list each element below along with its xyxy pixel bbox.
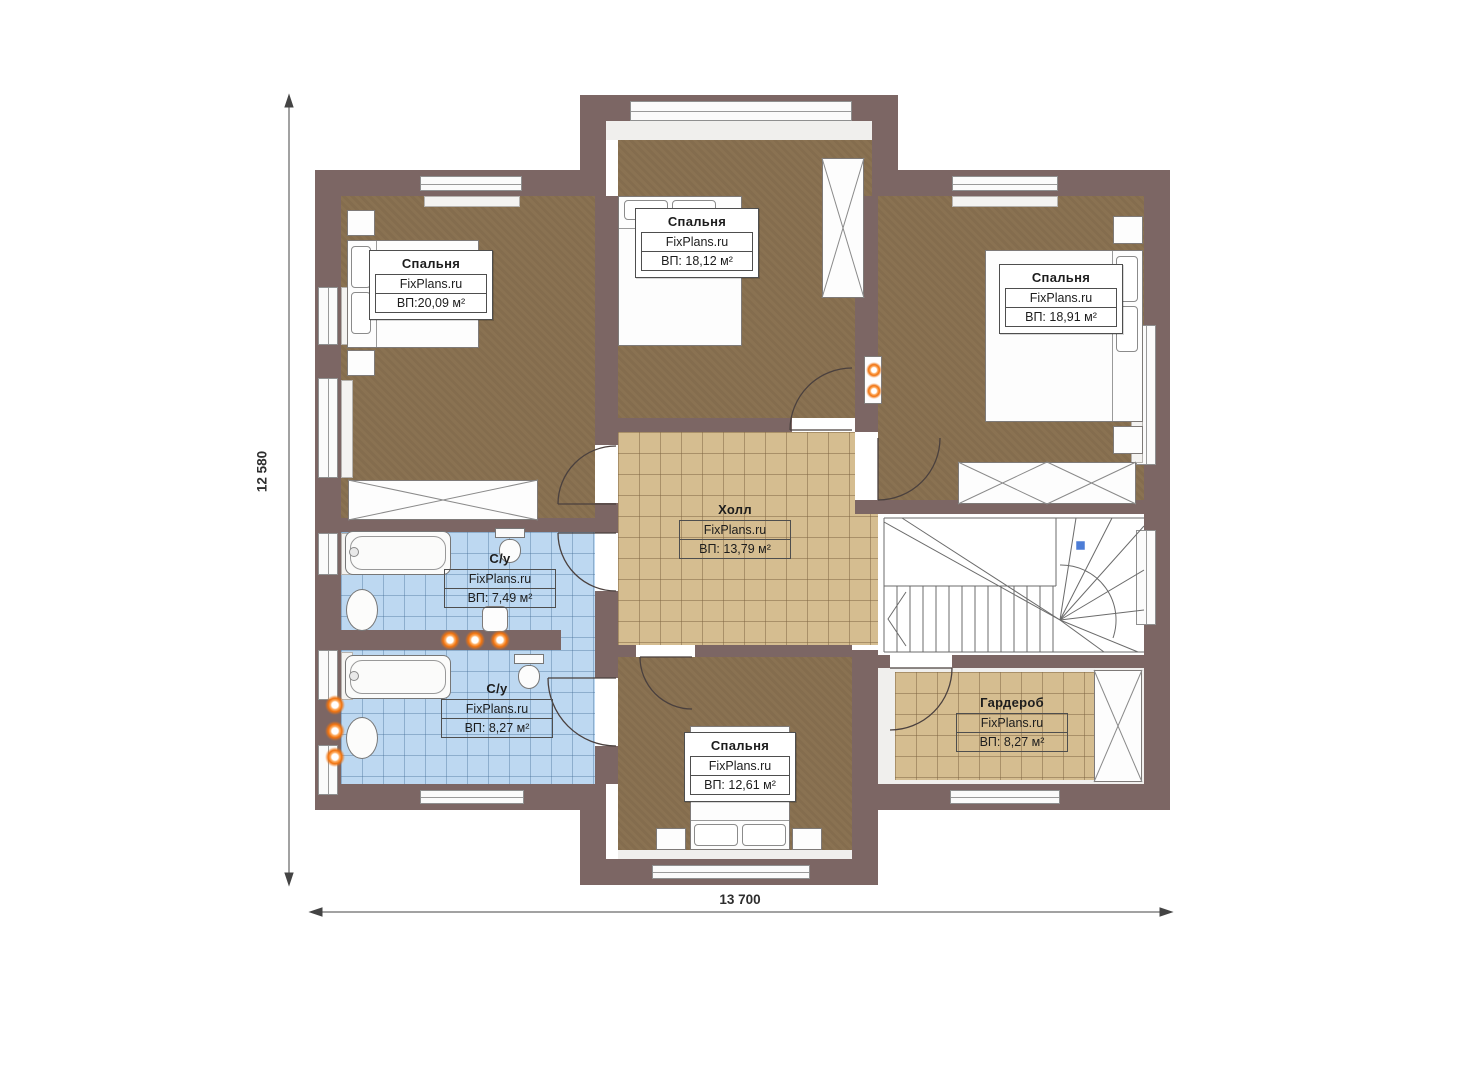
room-area: ВП: 8,27 м² <box>442 718 552 737</box>
window <box>318 287 338 345</box>
wall-segment <box>595 196 618 445</box>
room-area: ВП: 8,27 м² <box>957 732 1067 751</box>
sink <box>346 589 378 631</box>
room-watermark: FixPlans.ru <box>445 570 555 588</box>
window <box>318 378 338 478</box>
room-watermark: FixPlans.ru <box>1006 289 1116 307</box>
dimension-width-label: 13 700 <box>690 892 790 907</box>
room-watermark: FixPlans.ru <box>376 275 486 293</box>
radiator-dot <box>490 630 510 650</box>
window <box>420 790 524 804</box>
window-bay-top <box>606 121 872 140</box>
window <box>952 176 1058 191</box>
room-area: ВП: 18,91 м² <box>1006 307 1116 326</box>
window <box>420 176 522 191</box>
door-opening <box>595 678 618 746</box>
door-opening <box>595 445 618 503</box>
wall-segment <box>595 746 618 784</box>
room-name: Спальня <box>375 256 487 271</box>
wall-segment <box>852 650 878 784</box>
room-watermark: FixPlans.ru <box>680 521 790 539</box>
window-sill <box>424 196 520 207</box>
nightstand <box>1113 216 1143 244</box>
room-label-hall: Холл FixPlans.ru ВП: 13,79 м² <box>679 502 791 559</box>
room-label-bedroom-top: Спальня FixPlans.ru ВП: 18,12 м² <box>635 208 759 278</box>
room-label-bathroom-1: С/у FixPlans.ru ВП: 7,49 м² <box>444 551 556 608</box>
room-name: С/у <box>441 681 553 696</box>
radiator-dot <box>866 362 882 378</box>
wall-segment <box>618 418 792 432</box>
radiator-dot <box>325 695 345 715</box>
floor-plan-canvas: Спальня FixPlans.ru ВП:20,09 м² Спальня … <box>0 0 1474 1080</box>
bath-fixture <box>482 606 508 632</box>
room-name: Спальня <box>641 214 753 229</box>
wall-segment <box>952 655 1144 668</box>
room-name: Спальня <box>690 738 790 753</box>
room-area: ВП: 18,12 м² <box>642 251 752 270</box>
room-name: Спальня <box>1005 270 1117 285</box>
floor-staircase <box>878 514 1144 655</box>
sink <box>346 717 378 759</box>
room-area: ВП: 12,61 м² <box>691 775 789 794</box>
toilet <box>495 528 525 538</box>
room-watermark: FixPlans.ru <box>957 714 1067 732</box>
window <box>652 865 810 879</box>
radiator-dot <box>465 630 485 650</box>
bed-line <box>691 820 789 821</box>
wall-segment <box>595 591 618 678</box>
room-watermark: FixPlans.ru <box>691 757 789 775</box>
wardrobe-closet <box>822 158 864 298</box>
nightstand <box>347 350 375 376</box>
nightstand <box>792 828 822 850</box>
room-label-bedroom-bottom: Спальня FixPlans.ru ВП: 12,61 м² <box>684 732 796 802</box>
room-area: ВП:20,09 м² <box>376 293 486 312</box>
pillow <box>351 292 371 334</box>
wardrobe-closet <box>958 462 1136 504</box>
room-name: С/у <box>444 551 556 566</box>
pillow <box>351 246 371 288</box>
room-label-bedroom-left: Спальня FixPlans.ru ВП:20,09 м² <box>369 250 493 320</box>
wardrobe-closet <box>348 480 538 520</box>
wall-segment <box>1144 170 1170 810</box>
room-name: Холл <box>679 502 791 517</box>
room-label-bathroom-2: С/у FixPlans.ru ВП: 8,27 м² <box>441 681 553 738</box>
wall-segment <box>341 518 595 532</box>
window <box>318 650 338 700</box>
radiator-dot <box>325 721 345 741</box>
bathtub <box>345 655 451 699</box>
room-area: ВП: 7,49 м² <box>445 588 555 607</box>
room-area: ВП: 13,79 м² <box>680 539 790 558</box>
door-opening <box>595 533 618 591</box>
room-name: Гардероб <box>956 695 1068 710</box>
radiator-dot <box>866 383 882 399</box>
window <box>630 101 852 121</box>
wall-segment <box>618 645 636 657</box>
room-watermark: FixPlans.ru <box>642 233 752 251</box>
window <box>318 533 338 575</box>
window <box>1136 530 1156 625</box>
nightstand <box>656 828 686 850</box>
window-sill <box>952 196 1058 207</box>
bathtub <box>345 531 451 575</box>
wardrobe-closet <box>1094 670 1142 782</box>
wall-segment <box>695 645 852 657</box>
window-sill <box>341 380 353 478</box>
radiator-dot <box>325 747 345 767</box>
toilet <box>514 654 544 664</box>
pillow <box>694 824 738 846</box>
wall-segment <box>878 655 890 668</box>
nightstand <box>1113 426 1143 454</box>
room-label-bedroom-right: Спальня FixPlans.ru ВП: 18,91 м² <box>999 264 1123 334</box>
wall-segment <box>595 503 618 533</box>
nightstand <box>347 210 375 236</box>
pillow <box>742 824 786 846</box>
door-opening <box>855 432 878 500</box>
dimension-height-label: 12 580 <box>255 442 270 502</box>
radiator-dot <box>440 630 460 650</box>
room-watermark: FixPlans.ru <box>442 700 552 718</box>
window <box>950 790 1060 804</box>
room-label-wardrobe: Гардероб FixPlans.ru ВП: 8,27 м² <box>956 695 1068 752</box>
